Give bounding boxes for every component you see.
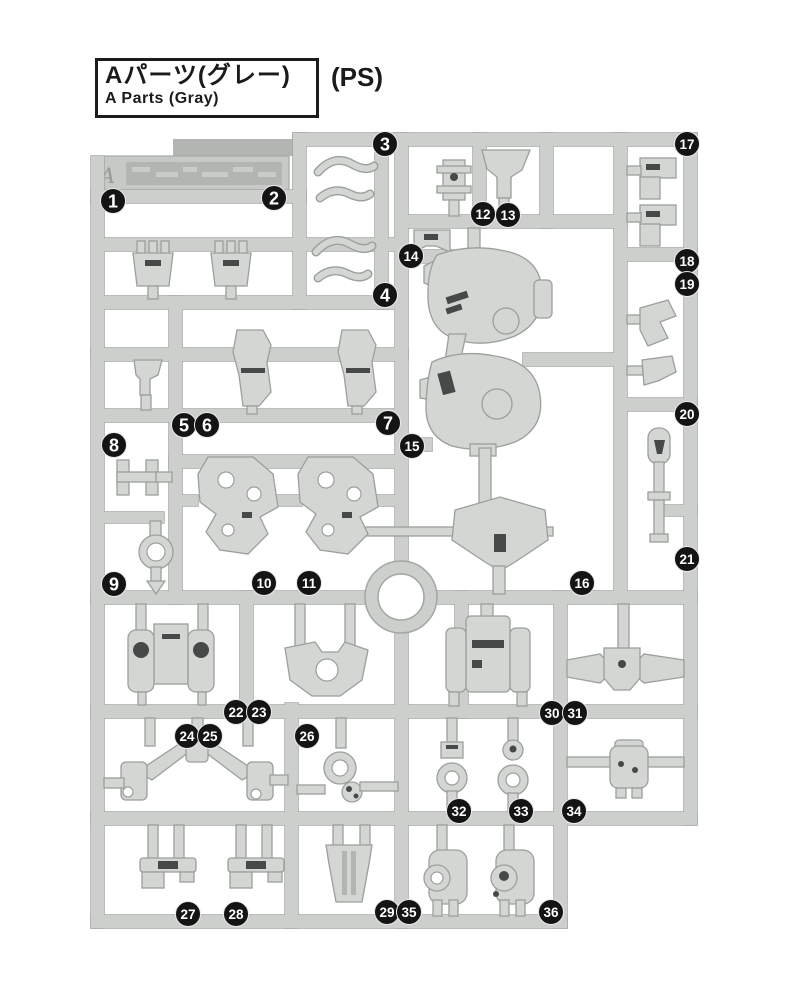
part-28-shape [228, 825, 284, 888]
svg-text:11: 11 [302, 576, 317, 591]
svg-text:2: 2 [269, 189, 279, 209]
svg-text:5: 5 [179, 416, 189, 436]
part-33-shape [498, 718, 528, 812]
svg-text:19: 19 [679, 277, 694, 292]
svg-text:34: 34 [566, 804, 582, 819]
svg-text:12: 12 [475, 207, 490, 222]
part-12-shape [437, 160, 471, 216]
part-7-leg-shape [338, 330, 376, 414]
part-badge-1: 1 [101, 189, 126, 214]
part-badge-13: 13 [496, 203, 521, 228]
center-ring-runner [365, 561, 437, 633]
part-badge-25: 25 [198, 724, 223, 749]
part-19-shape [627, 300, 676, 346]
part-badge-8: 8 [102, 433, 127, 458]
part-21-shape [648, 428, 670, 542]
part-small-bracket-shape [134, 360, 162, 410]
part-badge-3: 3 [373, 132, 398, 157]
part-31-wing-shape [567, 604, 684, 690]
svg-text:1: 1 [108, 192, 118, 212]
svg-text:20: 20 [679, 407, 694, 422]
part-badge-29: 29 [375, 900, 400, 925]
part-badge-23: 23 [247, 700, 272, 725]
svg-text:21: 21 [679, 552, 695, 567]
svg-text:24: 24 [179, 729, 195, 744]
part-badge-35: 35 [397, 900, 422, 925]
part-badge-20: 20 [675, 402, 700, 427]
svg-text:25: 25 [202, 729, 218, 744]
part-36-shape [491, 825, 534, 916]
svg-text:31: 31 [567, 706, 583, 721]
svg-text:28: 28 [228, 907, 244, 922]
svg-text:17: 17 [679, 137, 694, 152]
svg-text:33: 33 [513, 804, 529, 819]
svg-text:14: 14 [403, 249, 419, 264]
part-badge-36: 36 [539, 900, 564, 925]
svg-text:10: 10 [256, 576, 271, 591]
part-10-shape [198, 457, 278, 554]
part-badge-10: 10 [252, 571, 277, 596]
part-29-boot-shape [326, 825, 372, 902]
part-35-shape [424, 825, 467, 916]
part-badge-17: 17 [675, 132, 700, 157]
svg-text:22: 22 [228, 705, 243, 720]
part-32-shape [437, 718, 467, 812]
part-badge-6: 6 [195, 413, 220, 438]
part-5-6-leg-shape [233, 330, 271, 414]
svg-text:35: 35 [401, 905, 417, 920]
part-badge-26: 26 [295, 724, 320, 749]
svg-text:13: 13 [500, 208, 516, 223]
svg-text:3: 3 [380, 135, 390, 155]
instruction-sheet: Aパーツ(グレー) A Parts (Gray) (PS) A [0, 0, 805, 1000]
part-badge-33: 33 [509, 799, 534, 824]
part-badge-28: 28 [224, 902, 249, 927]
part-badge-9: 9 [102, 572, 127, 597]
part-badge-11: 11 [297, 571, 322, 596]
sprue-diagram: A [0, 0, 805, 1000]
part-badge-34: 34 [562, 799, 587, 824]
part-badge-5: 5 [172, 413, 197, 438]
svg-text:7: 7 [383, 414, 393, 434]
part-badge-32: 32 [447, 799, 472, 824]
runner-id-tab: A [95, 139, 303, 193]
part-badge-18: 18 [675, 249, 700, 274]
part-1-shape [133, 241, 173, 299]
part-27-shape [140, 825, 196, 888]
svg-text:26: 26 [299, 729, 315, 744]
svg-text:15: 15 [404, 439, 420, 454]
part-8-shape [117, 460, 172, 495]
svg-text:29: 29 [379, 905, 394, 920]
part-badge-2: 2 [262, 186, 287, 211]
part-waist-shape [285, 604, 368, 696]
part-badge-22: 22 [224, 700, 249, 725]
svg-text:27: 27 [180, 907, 195, 922]
part-22-23-backpack-shape [128, 604, 214, 705]
svg-text:9: 9 [109, 575, 119, 595]
svg-text:4: 4 [380, 286, 390, 306]
svg-text:32: 32 [451, 804, 466, 819]
part-badge-7: 7 [376, 411, 401, 436]
part-badge-31: 31 [563, 701, 588, 726]
svg-text:36: 36 [543, 905, 559, 920]
svg-text:6: 6 [202, 416, 212, 436]
part-badge-21: 21 [675, 547, 700, 572]
part-badge-12: 12 [471, 202, 496, 227]
part-badge-19: 19 [675, 272, 700, 297]
svg-text:18: 18 [679, 254, 695, 269]
svg-text:23: 23 [251, 705, 267, 720]
part-18-shape [627, 205, 676, 246]
part-badge-30: 30 [540, 701, 565, 726]
part-3-4-antenna-shapes [316, 160, 374, 278]
part-badge-14: 14 [399, 244, 424, 269]
svg-text:8: 8 [109, 436, 119, 456]
part-20-shape [627, 356, 676, 385]
part-11-shape [298, 457, 378, 554]
part-34-shape [567, 740, 684, 798]
sprue-parts [104, 150, 684, 916]
part-badge-16: 16 [570, 571, 595, 596]
svg-text:30: 30 [544, 706, 559, 721]
part-badge-15: 15 [400, 434, 425, 459]
svg-text:16: 16 [574, 576, 590, 591]
part-17-shape [627, 158, 676, 199]
part-badge-4: 4 [373, 283, 398, 308]
part-2-shape [211, 241, 251, 299]
part-9-shape [139, 521, 173, 594]
part-badge-27: 27 [176, 902, 201, 927]
part-badge-24: 24 [175, 724, 200, 749]
